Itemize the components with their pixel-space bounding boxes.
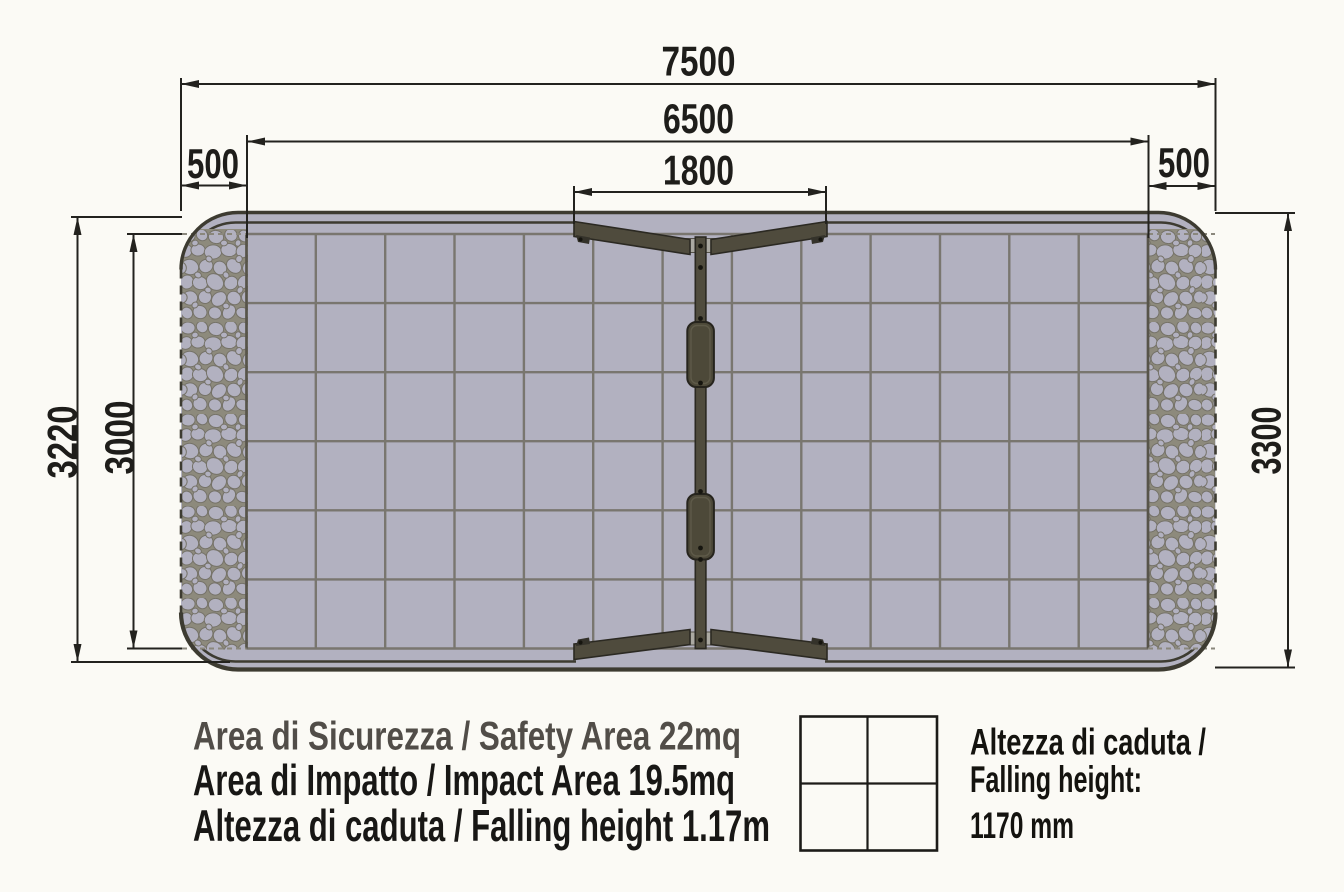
svg-text:500: 500	[1158, 139, 1210, 186]
svg-text:Altezza di caduta /: Altezza di caduta /	[970, 722, 1206, 763]
svg-text:3300: 3300	[1243, 407, 1290, 475]
svg-text:3220: 3220	[39, 406, 86, 479]
svg-text:500: 500	[187, 140, 239, 187]
svg-text:1170 mm: 1170 mm	[970, 805, 1074, 846]
svg-text:Area di Impatto / Impact Area: Area di Impatto / Impact Area 19.5mq	[193, 757, 735, 805]
svg-text:7500: 7500	[662, 38, 736, 85]
svg-text:6500: 6500	[663, 95, 734, 142]
svg-text:1800: 1800	[663, 147, 734, 194]
svg-text:Area di Sicurezza / Safety Are: Area di Sicurezza / Safety Area 22mq	[193, 715, 741, 759]
svg-text:Altezza di caduta / Falling he: Altezza di caduta / Falling height 1.17m	[193, 802, 770, 851]
svg-text:Falling height:: Falling height:	[970, 759, 1142, 800]
svg-text:3000: 3000	[96, 401, 143, 475]
